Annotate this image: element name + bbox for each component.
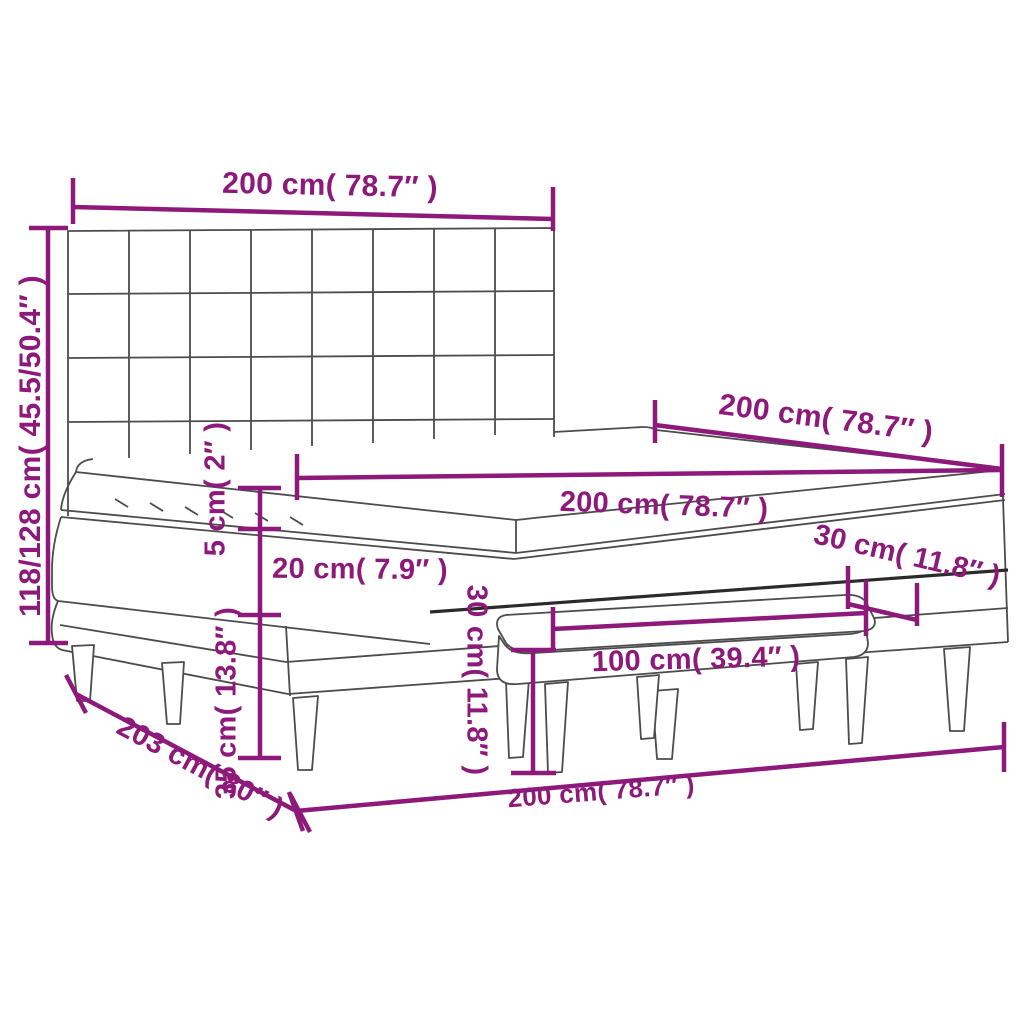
dim-headboard-width-label: 200 cm( 78.7″ ) — [222, 169, 438, 204]
dim-topper-thickness-label: 5 cm( 2″ ) — [202, 422, 231, 557]
bed-dimension-diagram: 200 cm( 78.7″ ) 118/128 cm( 45.5/50.4″ )… — [0, 0, 1024, 1024]
headboard — [68, 228, 554, 516]
dim-line-mattress-width — [298, 470, 1002, 478]
dim-bench-width-label: 100 cm( 39.4″ ) — [591, 643, 800, 677]
dim-mattress-width-label: 200 cm( 78.7″ ) — [559, 488, 769, 524]
dim-mattress-thickness-label: 20 cm( 7.9″ ) — [272, 555, 448, 586]
dim-line-headboard-width — [73, 207, 553, 219]
dim-bench-height-label: 30 cm( 11.8″ ) — [462, 585, 491, 776]
dim-total-height-label: 118/128 cm( 45.5/50.4″ ) — [16, 275, 46, 617]
bed-line-drawing — [0, 0, 1024, 1024]
